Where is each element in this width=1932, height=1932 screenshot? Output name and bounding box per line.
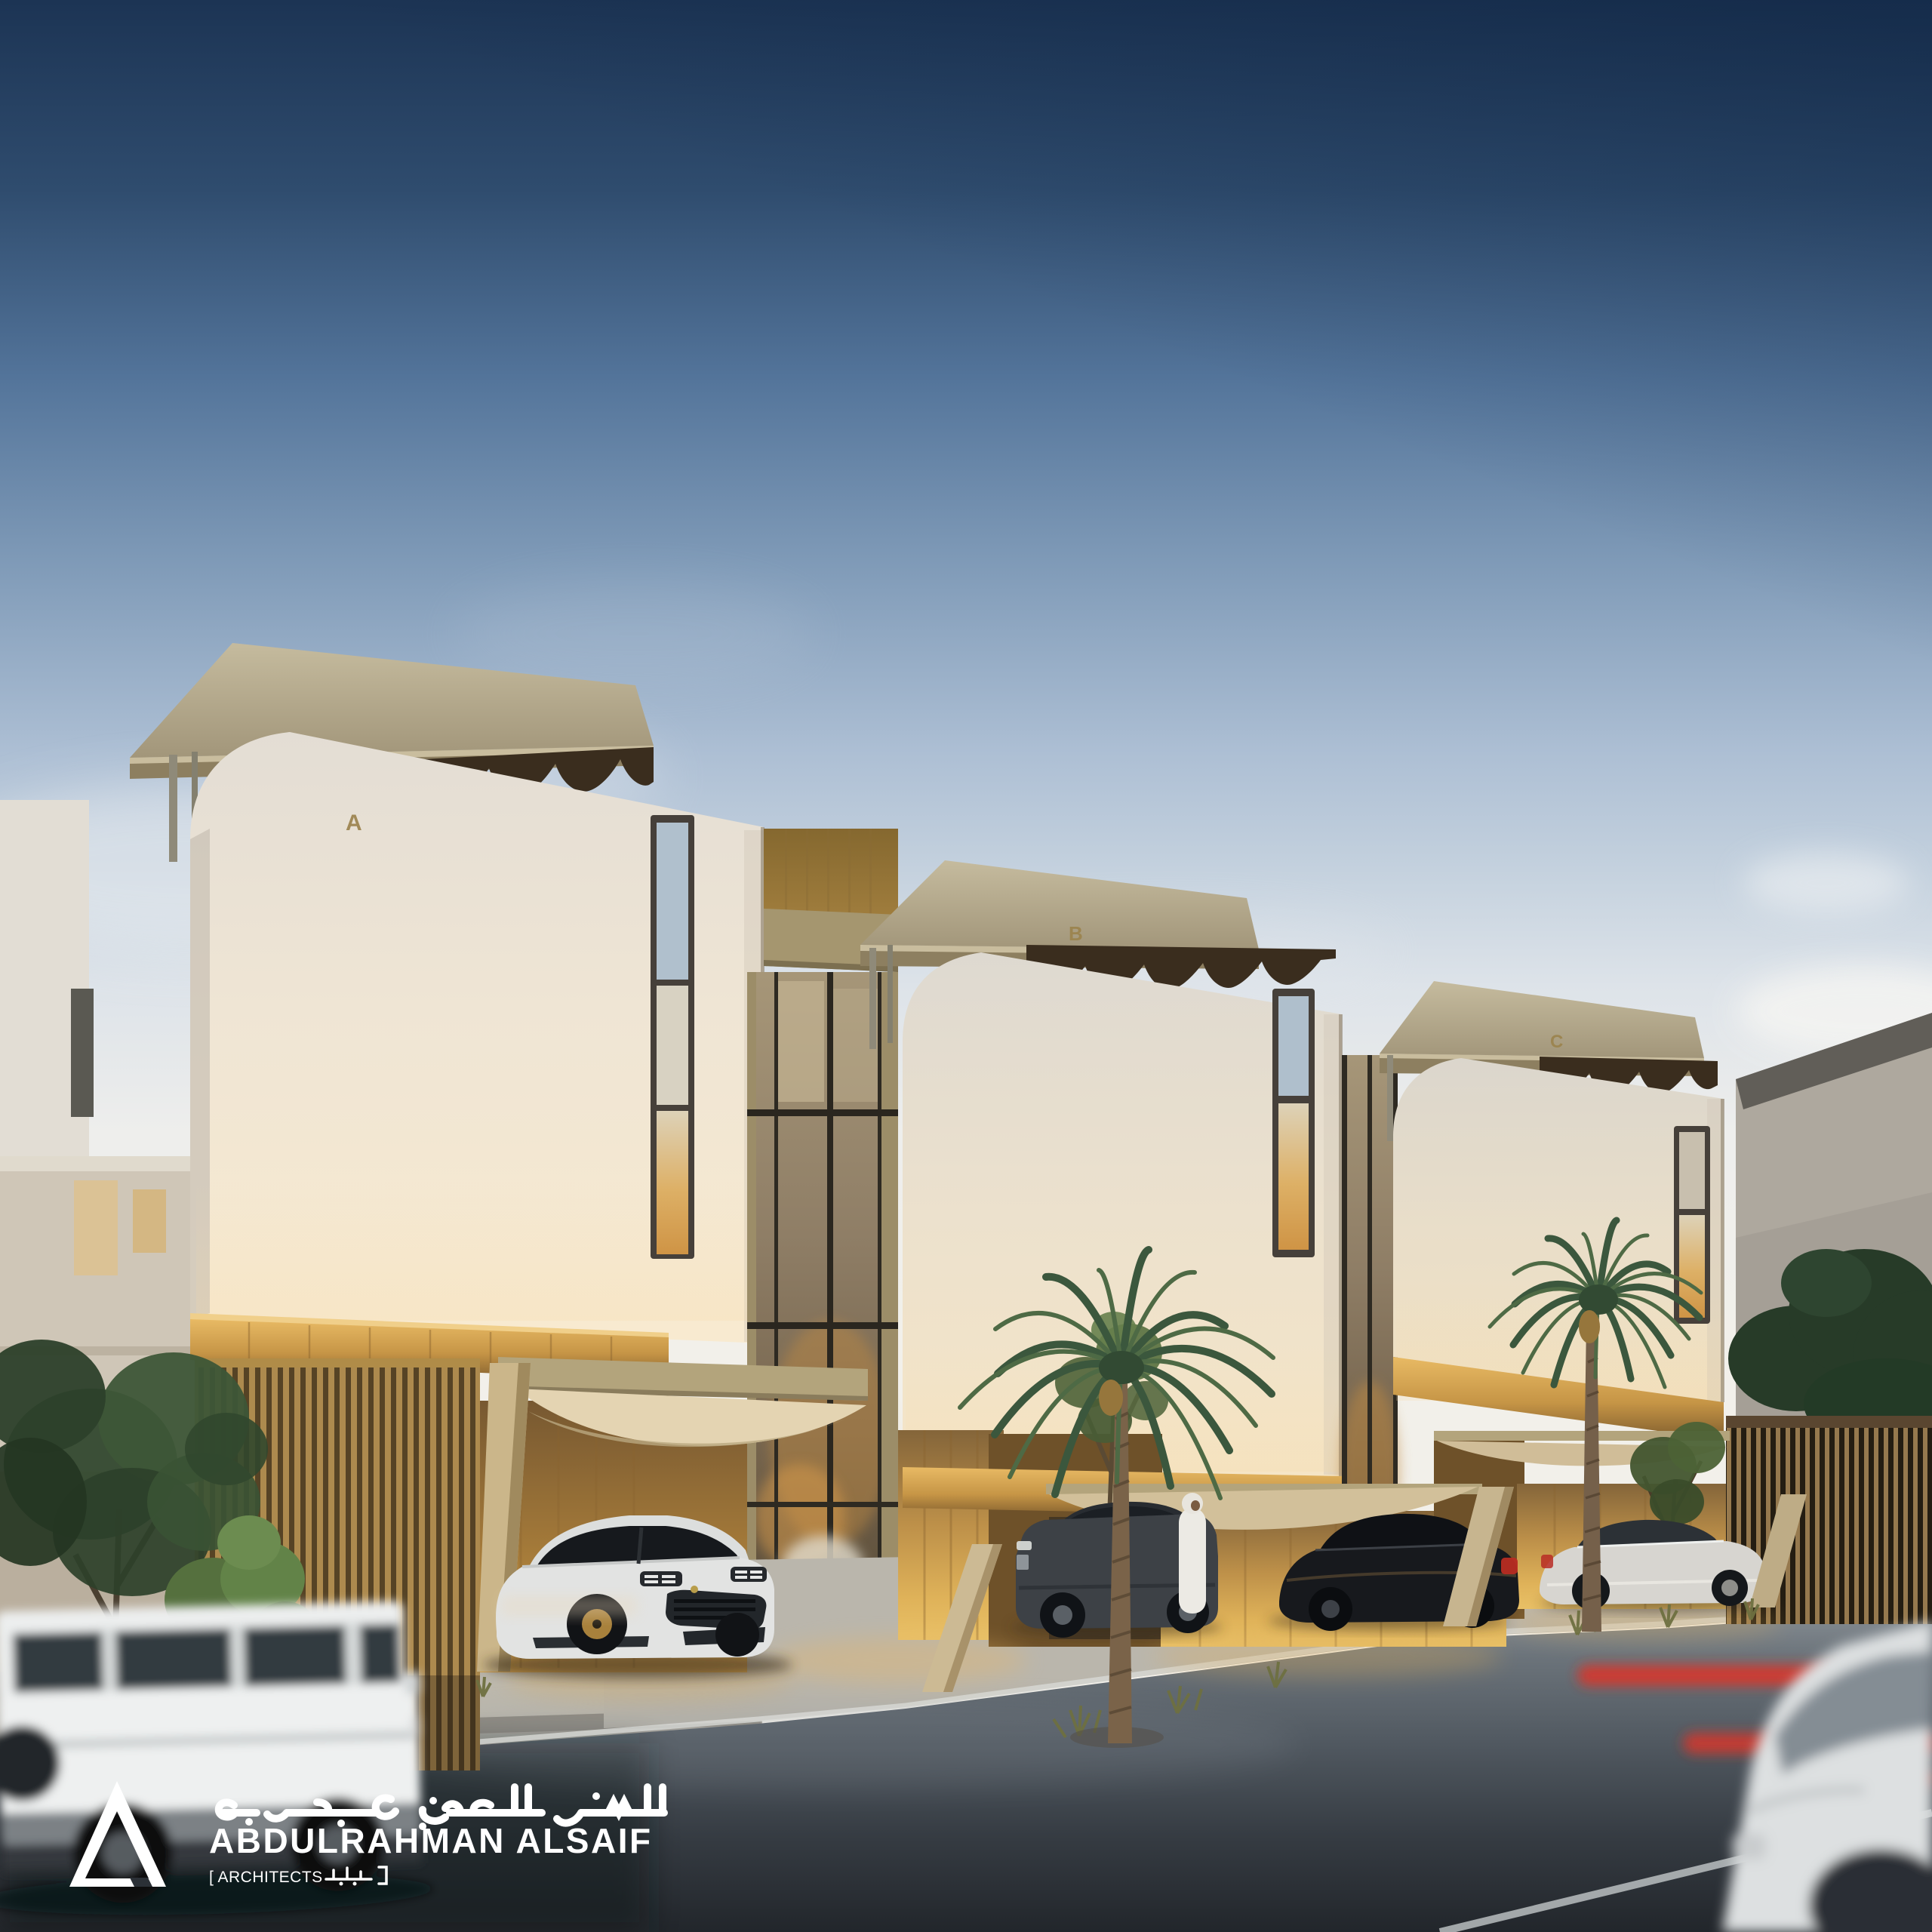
svg-text:[ ARCHITECTS: [ ARCHITECTS [209,1869,323,1886]
svg-text:A: A [346,811,362,835]
svg-text:B: B [1069,922,1083,945]
svg-text:C: C [1550,1032,1563,1052]
svg-text:ABDULRAHMAN ALSAIF: ABDULRAHMAN ALSAIF [209,1821,653,1860]
